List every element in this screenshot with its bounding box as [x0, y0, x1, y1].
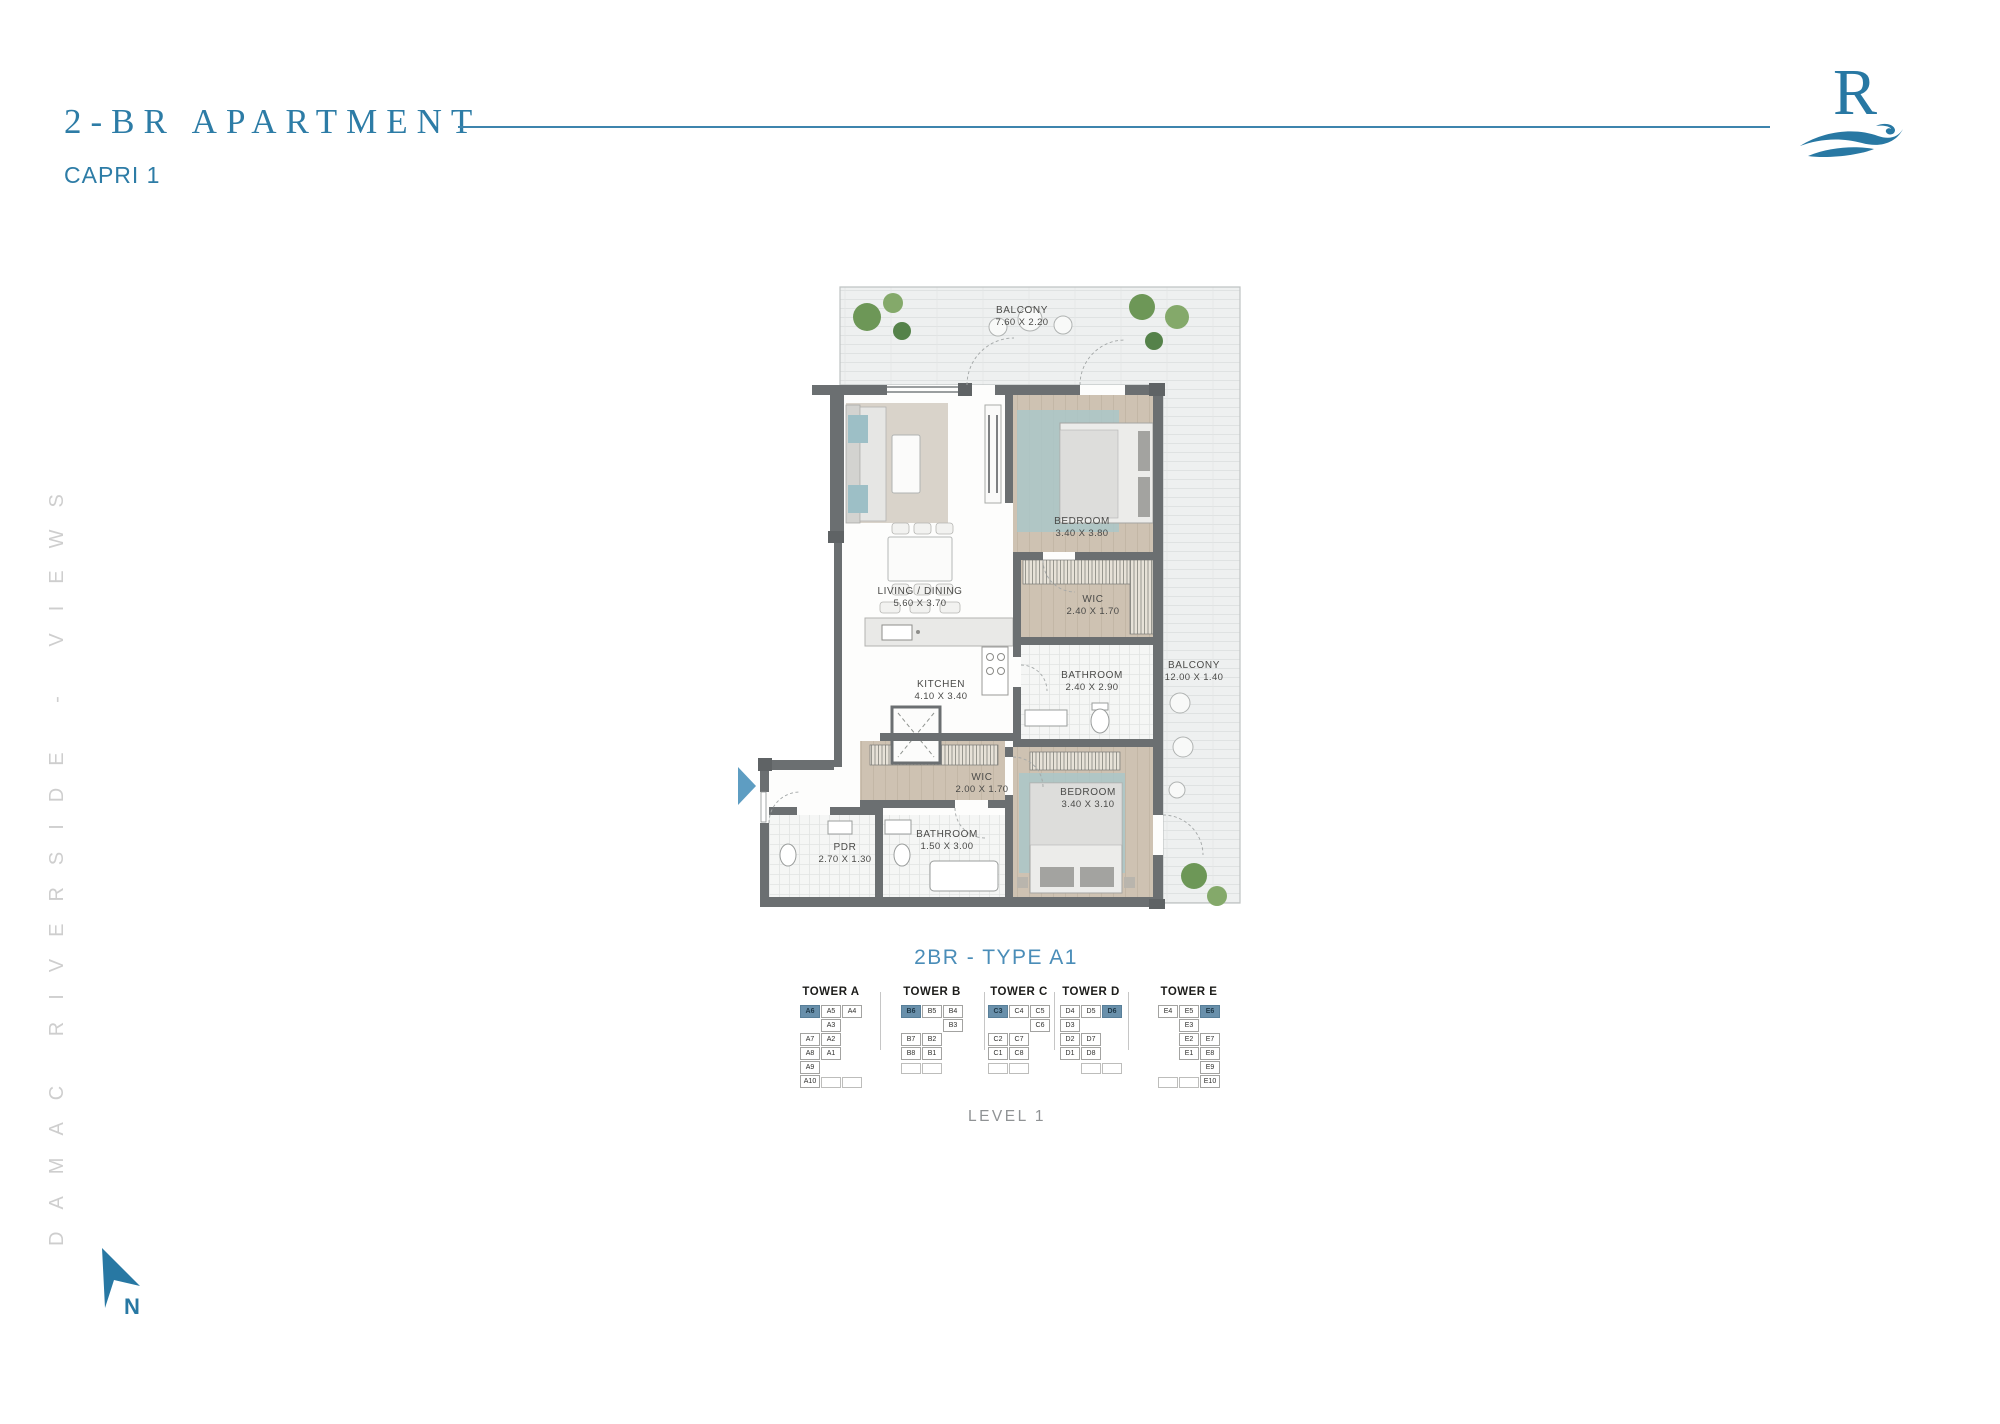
unit-cell: C8 [1009, 1047, 1029, 1060]
core-stub [922, 1063, 942, 1074]
north-compass: N [82, 1242, 154, 1320]
unit-cell-highlighted: D6 [1102, 1005, 1122, 1018]
core-stub [901, 1063, 921, 1074]
core-stub [1179, 1077, 1199, 1088]
unit-cell: E10 [1200, 1075, 1220, 1088]
core-stub [1081, 1063, 1101, 1074]
unit-cell: A7 [800, 1033, 820, 1046]
page-title: 2-BR APARTMENT [64, 102, 481, 142]
core-stub [1158, 1077, 1178, 1088]
unit-cell: A5 [821, 1005, 841, 1018]
unit-type-label: 2BR - TYPE A1 [914, 946, 1078, 970]
core-stub [1009, 1063, 1029, 1074]
tower-keyplan: TOWER EE4E5E6E3E2E7E1E8E9E10 [1128, 986, 1250, 1093]
tower-separator [1128, 992, 1129, 1050]
unit-cell-highlighted: A6 [800, 1005, 820, 1018]
unit-cell: E4 [1158, 1005, 1178, 1018]
unit-cell: D5 [1081, 1005, 1101, 1018]
tower-keyplan: TOWER AA6A5A4A3A7A2A8A1A9A10 [782, 986, 880, 1089]
unit-cell: A4 [842, 1005, 862, 1018]
project-vertical-label: DAMAC RIVERSIDE - VIEWS [46, 278, 69, 1246]
unit-cell: D7 [1081, 1033, 1101, 1046]
unit-cell: C5 [1030, 1005, 1050, 1018]
unit-cell: D8 [1081, 1047, 1101, 1060]
unit-cell: A8 [800, 1047, 820, 1060]
unit-cell: B8 [901, 1047, 921, 1060]
unit-cell: A2 [821, 1033, 841, 1046]
unit-cell: A9 [800, 1061, 820, 1074]
unit-cell: A3 [821, 1019, 841, 1032]
brand-logo: R [1800, 60, 1910, 170]
unit-cell-highlighted: E6 [1200, 1005, 1220, 1018]
north-arrow-icon: N [82, 1242, 154, 1320]
unit-cell: E1 [1179, 1047, 1199, 1060]
north-label: N [124, 1294, 140, 1319]
page-subtitle: CAPRI 1 [64, 162, 160, 189]
core-stub [821, 1077, 841, 1088]
brochure-page: 2-BR APARTMENT CAPRI 1 R DAMAC RIVERSIDE… [0, 0, 2000, 1424]
core-stub [1102, 1063, 1122, 1074]
logo-letter: R [1800, 60, 1910, 126]
entry-arrow-icon [738, 767, 756, 805]
unit-cell: C7 [1009, 1033, 1029, 1046]
unit-cell: C2 [988, 1033, 1008, 1046]
floorplan-svg [730, 255, 1245, 915]
unit-cell-highlighted: B6 [901, 1005, 921, 1018]
unit-cell: D4 [1060, 1005, 1080, 1018]
unit-cell: A1 [821, 1047, 841, 1060]
bedroom2-furniture [1017, 773, 1135, 893]
core-stub [988, 1063, 1008, 1074]
unit-cell: B5 [922, 1005, 942, 1018]
unit-cell: D3 [1060, 1019, 1080, 1032]
unit-cell-highlighted: C3 [988, 1005, 1008, 1018]
unit-cell: E3 [1179, 1019, 1199, 1032]
unit-cell: B1 [922, 1047, 942, 1060]
unit-cell: E2 [1179, 1033, 1199, 1046]
unit-cell: B2 [922, 1033, 942, 1046]
tower-name: TOWER C [984, 986, 1054, 998]
tower-separator [1054, 992, 1055, 1050]
unit-cell: B7 [901, 1033, 921, 1046]
unit-cell: C1 [988, 1047, 1008, 1060]
tower-name: TOWER B [880, 986, 984, 998]
unit-cell: E5 [1179, 1005, 1199, 1018]
tower-unit-grid: B6B5B4B3B7B2B8B1 [901, 1005, 963, 1075]
tower-separator [984, 992, 985, 1050]
unit-cell: B4 [943, 1005, 963, 1018]
tower-unit-grid: C3C4C5C6C2C7C1C8 [988, 1005, 1050, 1075]
unit-cell: D2 [1060, 1033, 1080, 1046]
tower-name: TOWER D [1054, 986, 1128, 998]
unit-cell: A10 [800, 1075, 820, 1088]
floorplan: BALCONY7.60 X 2.20BEDROOM3.40 X 3.80WIC2… [730, 255, 1245, 915]
tower-separator [880, 992, 881, 1050]
bedroom1-furniture [1017, 410, 1153, 532]
entry-door-leaf [761, 792, 766, 822]
tower-name: TOWER E [1128, 986, 1250, 998]
tower-unit-grid: D4D5D6D3D2D7D1D8 [1060, 1005, 1122, 1075]
unit-cell: B3 [943, 1019, 963, 1032]
tower-keyplan: TOWER CC3C4C5C6C2C7C1C8 [984, 986, 1054, 1079]
unit-cell: E8 [1200, 1047, 1220, 1060]
unit-cell: E7 [1200, 1033, 1220, 1046]
unit-cell: C6 [1030, 1019, 1050, 1032]
tower-keyplan: TOWER BB6B5B4B3B7B2B8B1 [880, 986, 984, 1079]
level-label: LEVEL 1 [968, 1108, 1046, 1126]
unit-cell: E9 [1200, 1061, 1220, 1074]
tower-unit-grid: E4E5E6E3E2E7E1E8E9E10 [1158, 1005, 1220, 1089]
tower-name: TOWER A [782, 986, 880, 998]
core-stub [842, 1077, 862, 1088]
tower-unit-grid: A6A5A4A3A7A2A8A1A9A10 [800, 1005, 862, 1089]
tower-keyplan: TOWER DD4D5D6D3D2D7D1D8 [1054, 986, 1128, 1079]
title-rule-line [458, 126, 1770, 128]
unit-cell: C4 [1009, 1005, 1029, 1018]
unit-cell: D1 [1060, 1047, 1080, 1060]
